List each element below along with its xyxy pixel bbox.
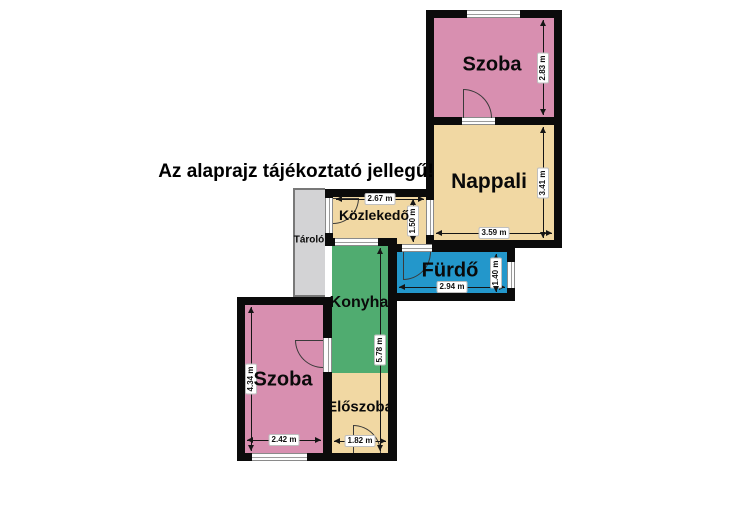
window-furdo — [507, 262, 515, 288]
label-furdo: Fürdő — [422, 260, 479, 283]
wall-szoba-bottom-divider — [323, 297, 332, 461]
label-tarolo: Tároló — [294, 235, 325, 246]
door-leaf-szoba-bottom — [295, 340, 323, 341]
label-szoba-top: Szoba — [463, 54, 522, 77]
label-nappali: Nappali — [451, 170, 527, 194]
window-kozlekedo-konyha — [335, 238, 378, 246]
window-szoba-bottom — [252, 453, 307, 461]
wall-bottom-block-top — [237, 297, 332, 305]
floor-plan: Az alaprajz tájékoztató jellegű! 2.83 m — [0, 0, 730, 516]
wall-furdo-bottom — [388, 293, 515, 301]
wall-top-block-right — [554, 10, 562, 248]
door-opening-szoba-nappali — [462, 117, 495, 125]
wall-bottom-block-left — [237, 297, 245, 461]
door-opening-szoba-bottom — [323, 338, 332, 372]
window-szoba-top — [467, 10, 520, 18]
wall-konyha-right — [388, 238, 397, 461]
label-konyha: Konyha — [330, 294, 389, 312]
label-eloszoba: Előszoba — [327, 399, 393, 416]
door-opening-tarolo — [325, 198, 333, 233]
door-leaf-furdo — [403, 252, 404, 280]
door-opening-furdo — [402, 244, 432, 252]
label-kozlekedo: Közlekedő — [339, 207, 409, 223]
door-opening-kozlekedo-nappali — [426, 200, 434, 235]
plan-disclaimer-text: Az alaprajz tájékoztató jellegű! — [158, 161, 434, 183]
label-szoba-bottom: Szoba — [254, 369, 313, 392]
door-leaf-szoba-top — [463, 89, 464, 118]
